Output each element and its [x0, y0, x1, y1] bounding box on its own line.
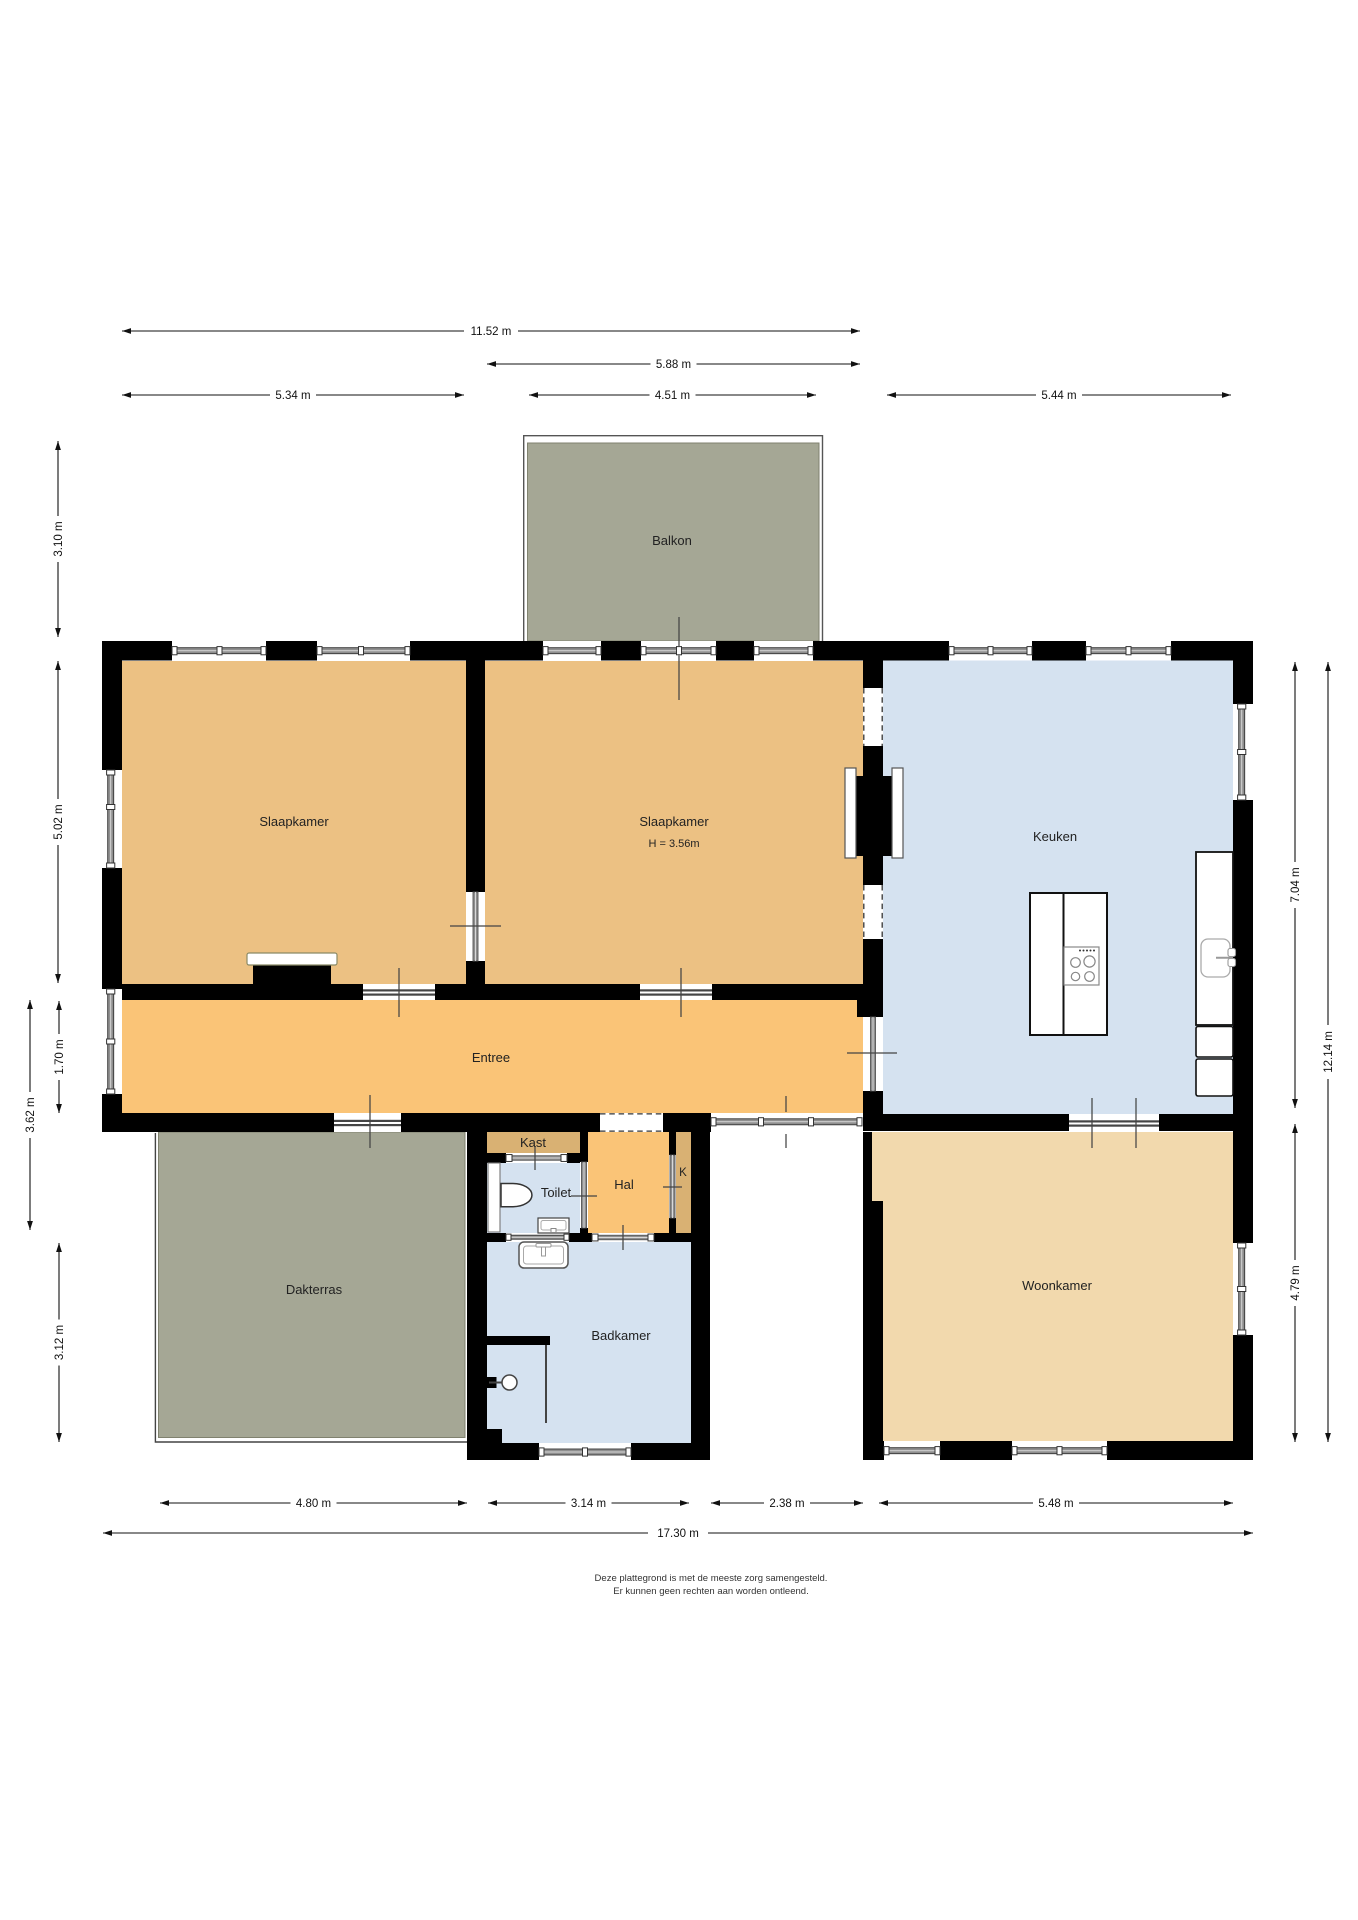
svg-text:4.80 m: 4.80 m — [296, 1498, 331, 1510]
svg-text:2.38 m: 2.38 m — [769, 1498, 804, 1510]
svg-text:4.51 m: 4.51 m — [655, 390, 690, 402]
svg-text:3.14 m: 3.14 m — [571, 1498, 606, 1510]
svg-text:Hal: Hal — [614, 1177, 634, 1192]
svg-text:7.04 m: 7.04 m — [1290, 867, 1302, 902]
svg-text:5.88 m: 5.88 m — [656, 359, 691, 371]
svg-text:Entree: Entree — [472, 1050, 510, 1065]
svg-text:Keuken: Keuken — [1033, 829, 1077, 844]
svg-text:5.44 m: 5.44 m — [1041, 390, 1076, 402]
svg-text:1.70 m: 1.70 m — [54, 1039, 66, 1074]
svg-text:Slaapkamer: Slaapkamer — [639, 814, 709, 829]
svg-text:Dakterras: Dakterras — [286, 1282, 343, 1297]
svg-text:4.79 m: 4.79 m — [1290, 1265, 1302, 1300]
svg-text:3.62 m: 3.62 m — [25, 1097, 37, 1132]
svg-text:Badkamer: Badkamer — [591, 1328, 651, 1343]
svg-text:Slaapkamer: Slaapkamer — [259, 814, 329, 829]
svg-text:3.10 m: 3.10 m — [53, 521, 65, 556]
svg-text:5.02 m: 5.02 m — [53, 804, 65, 839]
svg-text:K: K — [679, 1167, 687, 1179]
svg-text:Toilet: Toilet — [541, 1185, 572, 1200]
svg-text:3.12 m: 3.12 m — [54, 1325, 66, 1360]
svg-text:5.48 m: 5.48 m — [1038, 1498, 1073, 1510]
svg-text:Balkon: Balkon — [652, 533, 692, 548]
svg-text:Deze plattegrond is met de mee: Deze plattegrond is met de meeste zorg s… — [595, 1573, 828, 1584]
svg-text:H = 3.56m: H = 3.56m — [648, 838, 699, 850]
svg-text:11.52 m: 11.52 m — [471, 326, 512, 338]
svg-text:Kast: Kast — [520, 1135, 546, 1150]
svg-text:Woonkamer: Woonkamer — [1022, 1278, 1093, 1293]
svg-text:12.14 m: 12.14 m — [1323, 1031, 1335, 1073]
svg-text:17.30 m: 17.30 m — [657, 1528, 699, 1540]
svg-text:Er kunnen geen rechten aan wor: Er kunnen geen rechten aan worden ontlee… — [613, 1586, 808, 1597]
svg-text:5.34 m: 5.34 m — [275, 390, 310, 402]
